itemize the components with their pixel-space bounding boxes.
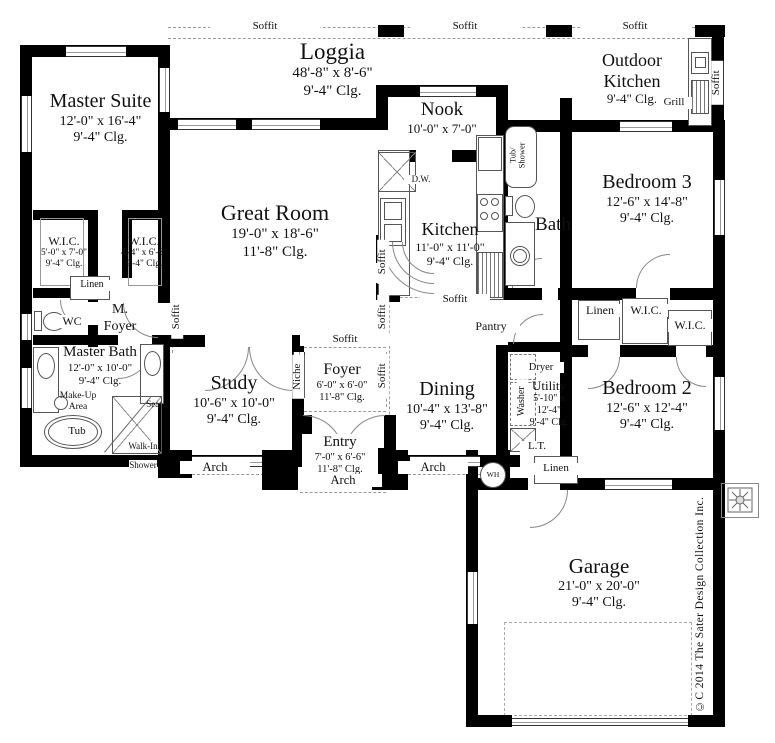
wic-label: W.I.C.: [624, 304, 668, 317]
washer-label: Washer: [517, 379, 528, 423]
room-label-master-suite: Master Suite 12'-0" x 16'-4" 9'-4" Clg.: [28, 90, 173, 147]
window: [21, 314, 32, 340]
linen-label: Linen: [74, 280, 110, 291]
grill-fixture: [691, 80, 709, 114]
room-label-kitchen: Kitchen 11'-0" x 11'-0" 9'-4" Clg.: [402, 219, 498, 269]
corner-cabinet: [378, 152, 416, 192]
garage-door: [512, 718, 688, 726]
outdoor-sink-basin: [695, 57, 706, 68]
refrigerator: [478, 137, 502, 171]
wall: [695, 25, 725, 37]
garage-apron-outline: [504, 622, 692, 716]
soffit-label: Soffit: [377, 295, 389, 339]
soffit-line: [168, 38, 700, 39]
niche-label: Niche: [292, 355, 304, 399]
toilet-tank: [505, 196, 513, 216]
room-label-utility: Utility 5'-10" x 12'-4" 9'-4" Clg.: [524, 378, 574, 429]
soffit-label: Soffit: [171, 295, 183, 339]
wall: [378, 25, 404, 37]
room-label-wic-2: W.I.C. 4'-4" x 6'-6" 9'-4" Clg.: [118, 234, 170, 271]
wall: [713, 120, 725, 490]
wall: [560, 300, 572, 345]
dryer-label: Dryer: [518, 362, 564, 373]
room-label-m-foyer: M. Foyer: [92, 302, 148, 335]
room-label-master-bath: Master Bath 12'-0" x 10'-0" 9'-4" Clg.: [48, 344, 152, 388]
wall: [560, 132, 572, 288]
soffit-label: Soffit: [420, 294, 490, 306]
soffit-label: Soffit: [410, 21, 520, 33]
soffit-label: Soffit: [210, 21, 320, 33]
window: [178, 119, 236, 130]
door-arc: [530, 490, 568, 528]
room-label-bedroom-3: Bedroom 3 12'-6" x 14'-8" 9'-4" Clg.: [582, 171, 712, 228]
compass-emblem: [721, 483, 759, 518]
soffit-label: Soffit: [580, 21, 690, 33]
room-label-garage: Garage 21'-0" x 20'-0" 9'-4" Clg.: [530, 554, 668, 612]
room-label-great-room: Great Room 19'-0" x 18'-6" 11'-8" Clg.: [190, 200, 360, 261]
soffit-line: [304, 411, 386, 412]
arch-label: Arch: [398, 461, 468, 474]
room-label-loggia: Loggia 48'-8" x 8'-6" 9'-4" Clg.: [250, 38, 415, 101]
arch-line: [300, 492, 386, 493]
room-label-bedroom-2: Bedroom 2 12'-6" x 12'-4" 9'-4" Clg.: [582, 377, 712, 434]
room-label-nook: Nook 10'-0" x 7'-0": [388, 99, 496, 137]
soffit-label: Soffit: [377, 240, 389, 284]
room-label-foyer: Foyer 6'-0" x 6'-0" 11'-8" Clg.: [308, 361, 376, 405]
sink-basin: [384, 202, 402, 220]
room-label-wc: WC: [56, 315, 88, 328]
door-arc: [636, 254, 670, 288]
room-label-study: Study 10'-6" x 10'-0" 9'-4" Clg.: [172, 372, 296, 429]
wall: [670, 288, 725, 300]
bath-sink-inner: [513, 249, 527, 263]
water-heater-label: WH: [481, 471, 505, 479]
floor-plan: Master Suite 12'-0" x 16'-4" 9'-4" Clg. …: [0, 0, 775, 743]
room-label-bath: Bath: [526, 214, 580, 236]
seat-label: Seat: [136, 400, 172, 409]
window: [620, 121, 672, 132]
wall: [706, 345, 725, 357]
wall: [164, 335, 205, 347]
burner: [480, 198, 488, 206]
window: [21, 368, 32, 408]
wall: [466, 715, 512, 727]
soffit-line: [304, 347, 386, 348]
room-label-dining: Dining 10'-4" x 13'-8" 9'-4" Clg.: [392, 378, 502, 435]
wall: [620, 345, 676, 357]
wall: [560, 98, 572, 132]
room-label-pantry: Pantry: [462, 320, 520, 333]
porch-column: [262, 450, 298, 490]
tub-shower-label: Tub/ Shower: [509, 129, 528, 181]
linen-label: Linen: [580, 304, 620, 317]
wic-label: W.I.C.: [668, 319, 712, 332]
wall: [558, 288, 572, 300]
arch-label: Arch: [304, 474, 382, 487]
window: [66, 46, 126, 57]
window: [605, 479, 672, 490]
room-label-entry: Entry 7'-0" x 6'-6" 11'-8" Clg.: [302, 434, 378, 476]
soffit-label: Soffit: [711, 61, 723, 105]
laundry-tub-label: L.T.: [520, 441, 554, 453]
burner: [491, 198, 499, 206]
toilet-tank: [34, 311, 42, 331]
window: [714, 377, 725, 430]
window: [714, 180, 725, 235]
linen-label: Linen: [534, 463, 578, 475]
walkin-shower-label: Walk-In Shower: [116, 436, 170, 474]
copyright-text: ©C 2014 The Sater Design Collection Inc.: [694, 490, 706, 712]
grill-label: Grill: [656, 97, 692, 109]
soffit-label: Soffit: [377, 354, 389, 398]
dishwasher-label: D.W.: [404, 175, 438, 184]
window: [420, 86, 476, 97]
room-label-wic-1: W.I.C. 5'-0" x 7'-0" 9'-4" Clg.: [36, 234, 92, 271]
window: [467, 572, 478, 624]
makeup-area-label: Make-Up Area: [54, 391, 102, 413]
arch-line: [192, 474, 264, 475]
compass-icon: [722, 484, 758, 517]
arch-label: Arch: [180, 461, 250, 474]
tub-label: Tub: [60, 426, 94, 438]
window: [252, 119, 320, 130]
wall: [546, 25, 572, 37]
